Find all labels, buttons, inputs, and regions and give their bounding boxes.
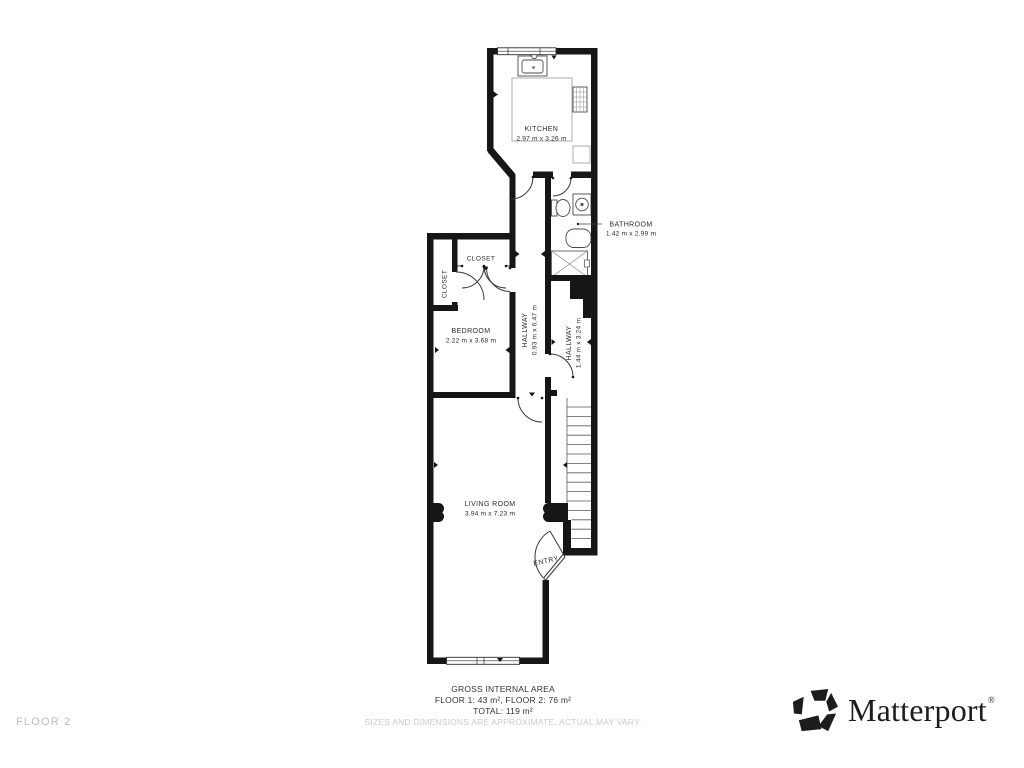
room-label-closet-top: CLOSET [467,256,495,263]
floorplan: KITCHEN 2.97 m x 3.26 m BATHROOM 1.42 m … [0,0,1024,768]
room-label-bathroom: BATHROOM [609,222,652,229]
room-label-hallway-1: HALLWAY [522,313,529,348]
room-dims-living-room: 3.94 m x 7.23 m [465,511,516,518]
room-label-living-room: LIVING ROOM [464,501,515,508]
kitchen-window [498,48,557,55]
staircase [567,398,593,539]
room-dims-bathroom: 1.42 m x 2.99 m [606,231,657,238]
gross-area-title: GROSS INTERNAL AREA [365,684,642,695]
bedroom-door-arc [487,268,511,292]
entry-door [535,531,565,580]
disclaimer-text: SIZES AND DIMENSIONS ARE APPROXIMATE, AC… [365,717,642,728]
stair-treads [567,407,593,539]
shower [552,251,590,277]
room-label-bedroom: BEDROOM [452,328,491,335]
bathroom-door-arc [553,178,571,196]
kitchen-sink-basin [522,60,543,73]
room-dims-kitchen: 2.97 m x 3.26 m [516,136,567,143]
living-room-door-arc [518,398,542,422]
toilet-bowl [556,200,570,217]
room-dims-hallway-2: 1.44 m x 3.24 m [576,318,583,369]
matterport-logo: Matterport® [791,687,994,734]
room-dims-bedroom: 2.22 m x 3.68 m [446,338,497,345]
gross-area-floors: FLOOR 1: 43 m², FLOOR 2: 76 m² [365,695,642,706]
room-label-hallway-2: HALLWAY [566,326,573,361]
page: { "floorplan": { "wall_color": "#161616"… [0,0,1024,768]
matterport-wordmark: Matterport [848,692,987,729]
kitchen-cabinet [573,146,590,163]
bathroom-fixtures [552,194,592,277]
kitchen-angled-wall [490,150,513,177]
matterport-logo-icon [791,687,838,734]
side-closet-door-arc [456,272,484,300]
bathtub [566,229,591,248]
room-dims-hallway-1: 0.93 m x 6.47 m [532,305,539,356]
kitchen-stove [573,87,587,112]
kitchen-fixtures [512,51,590,164]
room-label-entry: ENTRY [533,555,560,568]
closet-door-right-arc [484,266,506,288]
bathroom-sink-drain [580,203,583,206]
closet-door-left-arc [462,266,484,288]
gross-area-total: TOTAL: 119 m² [365,706,642,717]
living-room-window [447,657,520,664]
gross-area-block: GROSS INTERNAL AREA FLOOR 1: 43 m², FLOO… [365,684,642,728]
floor-label: FLOOR 2 [16,716,71,728]
room-label-closet-left: CLOSET [442,270,449,298]
room-label-kitchen: KITCHEN [525,126,559,133]
registered-trademark-icon: ® [988,695,995,705]
kitchen-sink-drain [532,66,535,69]
bathroom-label-leader [577,223,602,225]
